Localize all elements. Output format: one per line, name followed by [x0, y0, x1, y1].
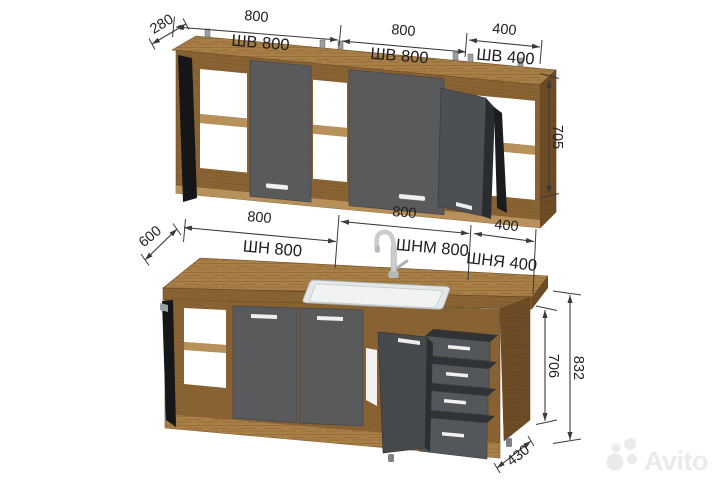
cabinet-leg [388, 454, 394, 462]
wall-door-2 [349, 70, 444, 215]
base-label-2: ШНМ 800 [395, 236, 469, 260]
wall-shelf-opening [200, 69, 247, 118]
mounting-bracket [453, 52, 458, 60]
base-width-1: 800 [247, 209, 273, 227]
avito-logo-icon [607, 438, 638, 471]
kitchen-drawing-svg: 280 800 ШВ 800 800 ШВ 800 400 ШВ 400 705 [0, 0, 720, 480]
watermark: Avito [607, 438, 709, 476]
base-width-line-3 [474, 234, 534, 242]
wall-shelf-opening [502, 98, 535, 146]
wall-shelf-opening [200, 123, 247, 172]
mounting-bracket [468, 54, 473, 62]
wall-open-door-swung [438, 88, 495, 219]
base-shelf-opening [184, 308, 226, 345]
wall-depth-value: 280 [147, 11, 176, 37]
mounting-bracket [320, 40, 325, 48]
watermark-brand-text: Avito [644, 446, 708, 476]
wall-height-value: 705 [549, 125, 565, 149]
base-label-1: ШН 800 [242, 237, 302, 260]
wall-door-1 [250, 60, 311, 202]
wall-shelf-opening [502, 152, 535, 200]
base-width-line-2 [341, 222, 469, 234]
wall-width-3: 400 [492, 21, 518, 39]
wall-shelf-opening [313, 80, 347, 128]
base-height-value: 706 [545, 354, 561, 378]
wall-width-2: 800 [391, 22, 416, 40]
total-height-value: 832 [570, 356, 586, 380]
base-shelf-opening [184, 350, 226, 388]
base-door-2 [299, 308, 363, 426]
base-door-1 [233, 306, 297, 423]
wall-width-1: 800 [244, 8, 269, 26]
faucet-lever [397, 261, 407, 268]
base-width-3: 400 [494, 217, 520, 235]
base-right-side-panel [500, 297, 530, 441]
base-depth-value: 600 [136, 223, 165, 251]
wall-shelf-opening [313, 134, 347, 182]
cabinet-leg [506, 438, 512, 447]
base-cabinet-interior [366, 348, 377, 406]
base-width-2: 800 [392, 204, 418, 222]
furniture-dimension-drawing: 280 800 ШВ 800 800 ШВ 800 400 ШВ 400 705 [0, 0, 720, 480]
base-label-3: ШНЯ 400 [465, 249, 538, 275]
base-open-door-swung [378, 332, 433, 453]
